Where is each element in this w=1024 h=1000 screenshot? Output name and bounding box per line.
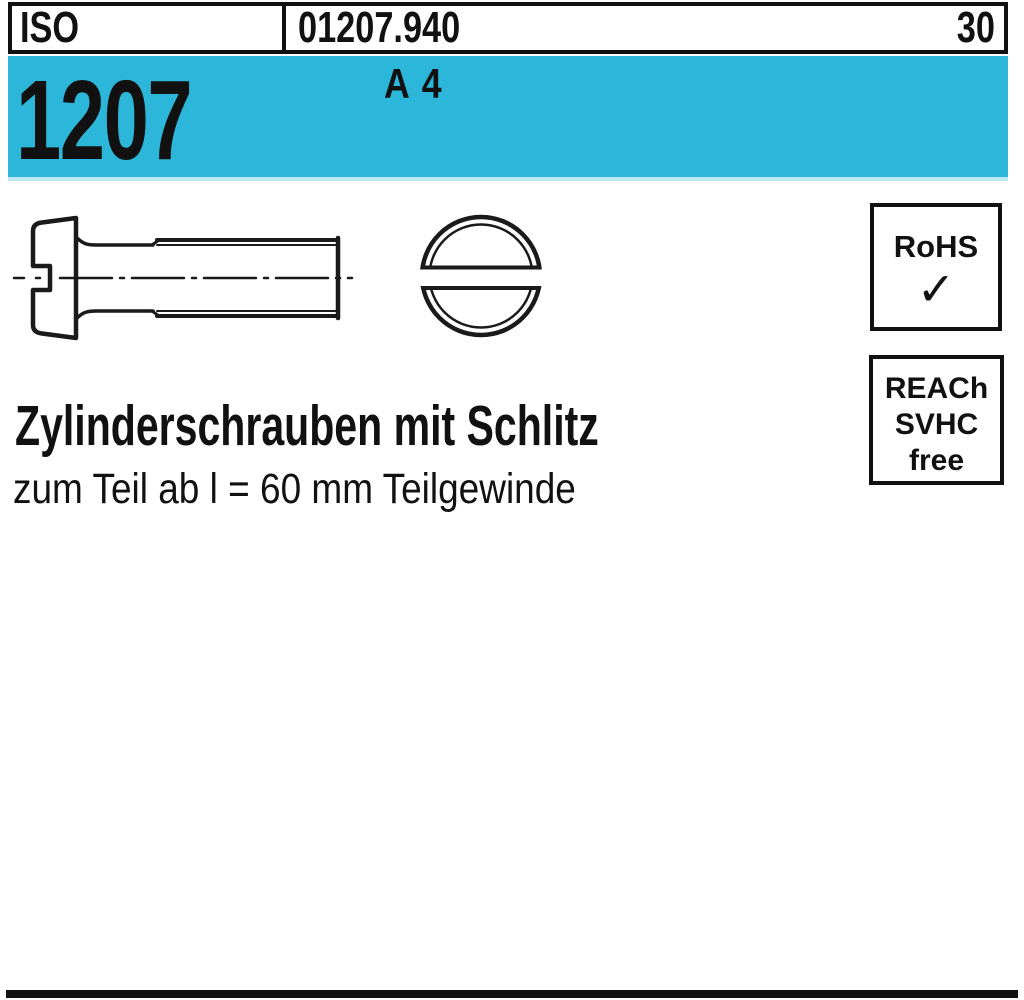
material-grade: A 4 bbox=[384, 63, 443, 105]
checkmark-icon: ✓ bbox=[874, 266, 998, 312]
product-subtitle: zum Teil ab l = 60 mm Teilgewinde bbox=[13, 468, 576, 511]
screw-neck-top bbox=[76, 237, 153, 245]
screw-technical-drawing bbox=[0, 185, 620, 385]
standard-label: ISO bbox=[20, 6, 79, 50]
standard-banner: 1207 A 4 bbox=[8, 56, 1008, 181]
reach-line-3: free bbox=[873, 443, 1000, 479]
article-number: 01207.940 bbox=[298, 6, 460, 50]
bottom-rule bbox=[6, 990, 1018, 998]
product-title: Zylinderschrauben mit Schlitz bbox=[15, 398, 599, 455]
screw-front-view bbox=[418, 217, 544, 335]
reach-line-2: SVHC bbox=[873, 407, 1000, 443]
rohs-badge: RoHS ✓ bbox=[870, 203, 1002, 331]
reach-badge: REACh SVHC free bbox=[869, 355, 1004, 485]
header-cell-article: 01207.940 30 bbox=[286, 6, 1004, 50]
rohs-label: RoHS bbox=[874, 231, 998, 262]
page-number: 30 bbox=[957, 6, 995, 50]
reach-line-1: REACh bbox=[873, 371, 1000, 407]
header-strip: ISO 01207.940 30 bbox=[8, 2, 1008, 54]
screw-side-view bbox=[14, 218, 352, 338]
screw-neck-bottom bbox=[76, 311, 153, 319]
slot-gap bbox=[418, 270, 544, 287]
catalog-card: ISO 01207.940 30 1207 A 4 bbox=[0, 0, 1024, 1000]
header-cell-standard: ISO bbox=[12, 6, 286, 50]
standard-number: 1207 bbox=[16, 69, 191, 173]
